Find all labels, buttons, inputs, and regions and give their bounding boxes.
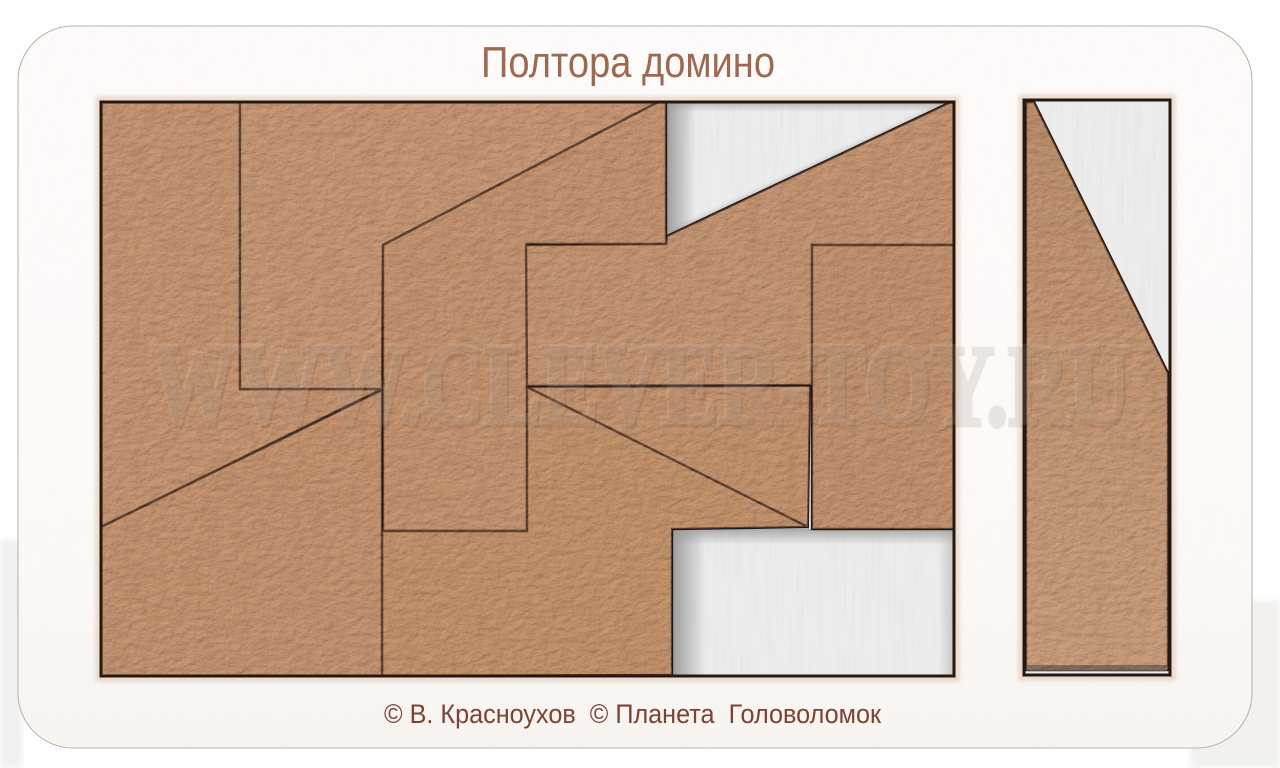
svg-text:WWW.CLEVER-TOY.RU: WWW.CLEVER-TOY.RU bbox=[150, 320, 1130, 448]
svg-text:Полтора домино: Полтора домино bbox=[481, 38, 775, 87]
svg-text:© В. Красноухов © Планета Го: © В. Красноухов © Планета Головоломок bbox=[384, 699, 881, 729]
